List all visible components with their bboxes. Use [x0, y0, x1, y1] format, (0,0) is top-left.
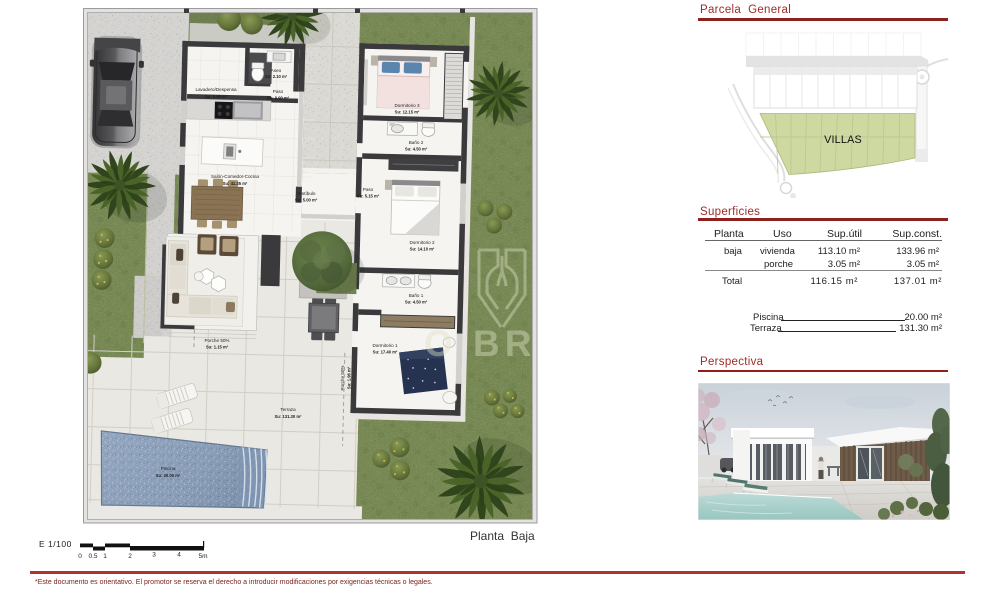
- svg-text:2: 2: [128, 553, 132, 560]
- svg-text:Su: 0.90 m²: Su: 0.90 m²: [267, 96, 290, 101]
- svg-text:Baño 1: Baño 1: [409, 293, 424, 298]
- svg-text:VILLAS: VILLAS: [824, 134, 862, 146]
- svg-text:Su: 12.15 m²: Su: 12.15 m²: [395, 110, 420, 115]
- svg-text:5m: 5m: [198, 553, 207, 560]
- svg-text:Porche 50%: Porche 50%: [340, 365, 345, 390]
- svg-text:Su: 5.15 m²: Su: 5.15 m²: [357, 194, 380, 199]
- svg-text:4: 4: [177, 552, 181, 559]
- svg-text:Su: 1.96 m²: Su: 1.96 m²: [347, 366, 352, 389]
- svg-text:Su: 14.10 m²: Su: 14.10 m²: [410, 247, 435, 252]
- svg-text:Su: 5.95 m²: Su: 5.95 m²: [205, 94, 228, 99]
- svg-text:Su: 1.15 m²: Su: 1.15 m²: [206, 345, 229, 350]
- svg-text:Su: 4.50 m²: Su: 4.50 m²: [405, 300, 428, 305]
- svg-text:Dormitorio 2: Dormitorio 2: [409, 240, 434, 245]
- svg-text:E 1/100: E 1/100: [39, 539, 72, 549]
- svg-text:Su: 2.10 m²: Su: 2.10 m²: [265, 74, 288, 79]
- svg-text:Piscina: Piscina: [161, 466, 176, 471]
- svg-text:Dormitorio 1: Dormitorio 1: [372, 343, 397, 348]
- svg-text:0.5: 0.5: [88, 553, 97, 560]
- svg-text:Su: 5.00 m²: Su: 5.00 m²: [295, 198, 318, 203]
- svg-text:Vestíbulo: Vestíbulo: [297, 191, 316, 196]
- svg-text:0: 0: [78, 553, 82, 560]
- svg-text:Su: 131.30 m²: Su: 131.30 m²: [275, 414, 303, 419]
- svg-text:Su: 4.50 m²: Su: 4.50 m²: [405, 147, 428, 152]
- svg-text:Aseo: Aseo: [271, 68, 282, 73]
- svg-text:O BR: O BR: [424, 323, 537, 364]
- svg-text:Su: 41.35 m²: Su: 41.35 m²: [223, 181, 248, 186]
- svg-text:Su: 17.40 m²: Su: 17.40 m²: [373, 350, 398, 355]
- svg-text:Baño 2: Baño 2: [409, 140, 424, 145]
- svg-text:3: 3: [152, 552, 156, 559]
- svg-text:Porche 50%: Porche 50%: [204, 338, 229, 343]
- svg-text:Dormitorio 3: Dormitorio 3: [394, 103, 419, 108]
- svg-text:Su: 20.00 m²: Su: 20.00 m²: [156, 473, 181, 478]
- svg-text:Lavadero/Despensa: Lavadero/Despensa: [195, 87, 237, 92]
- svg-text:Salón-Comedor-Cocina: Salón-Comedor-Cocina: [211, 174, 259, 179]
- svg-text:Paso: Paso: [273, 89, 284, 94]
- svg-text:Paso: Paso: [363, 187, 374, 192]
- svg-text:1: 1: [103, 553, 107, 560]
- svg-text:Terraza: Terraza: [280, 407, 296, 412]
